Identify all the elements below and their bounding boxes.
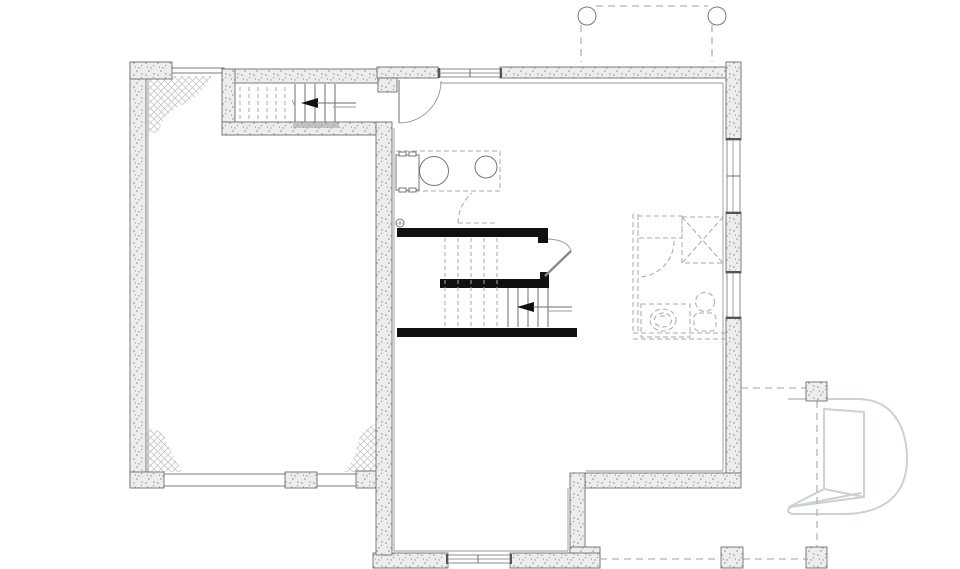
garage-pier-top-left: [130, 62, 172, 79]
porch-post-round-right: [708, 7, 726, 25]
bathroom-vanity-counter: [638, 216, 682, 238]
laundry-area: [396, 151, 500, 227]
hatch-patch-bottom-left: [147, 429, 183, 472]
stair-enclosure-top-wall: [222, 69, 390, 83]
bearing-wall-middle: [440, 279, 549, 288]
window-right-lower: [726, 271, 741, 319]
top-wall-left-segment: [377, 67, 438, 78]
watermark-logo: [788, 399, 907, 514]
interior-wall-garage-side: [376, 122, 392, 555]
window-right-upper: [726, 138, 741, 214]
upper-stair-dashed-treads: [240, 87, 285, 120]
future-bathroom: [633, 214, 726, 339]
windows: [438, 68, 741, 564]
bump-out-bottom-wall-right: [510, 553, 600, 568]
washer: [396, 152, 419, 192]
deck-post-bottom-right: [806, 547, 827, 568]
window-top: [438, 68, 502, 78]
front-porch-outline: [578, 6, 726, 62]
garage-pier-bottom-centre: [285, 472, 317, 488]
central-stair: [397, 228, 577, 337]
floor-plan-drawing: [0, 0, 960, 569]
bathroom-dashed-partitions: [633, 214, 726, 339]
deck-post-top-right: [806, 382, 827, 401]
right-wall-middle: [726, 212, 741, 273]
left-wall: [130, 62, 146, 487]
right-wall-upper: [726, 62, 741, 140]
hatch-patch-bottom-right: [344, 423, 377, 472]
entry-door-swing: [399, 80, 441, 123]
central-stair-direction-arrow: [517, 302, 572, 312]
right-wall-lower: [726, 317, 741, 473]
bearing-wall-top: [397, 228, 545, 237]
garage-top-frost-wall: [168, 68, 224, 73]
basement-floor-plan: [0, 0, 960, 569]
window-bottom: [446, 554, 512, 564]
bottom-right-wall: [585, 473, 741, 488]
floor-drain: [396, 219, 404, 227]
bathroom-door-swing: [638, 241, 674, 277]
bearing-wall-bottom: [397, 328, 577, 337]
laundry-door-swing: [458, 193, 497, 223]
garage-bottom-frost-wall: [130, 474, 383, 486]
upper-left-stair: [240, 84, 356, 128]
upper-stair-direction-arrow: [292, 98, 356, 108]
bearing-wall-top-jamb: [538, 228, 548, 243]
foundation-walls: [130, 62, 741, 568]
porch-post-round-left: [578, 7, 596, 25]
top-wall-right-segment: [500, 67, 741, 78]
laundry-tub: [420, 157, 449, 186]
deck-post-bottom-middle: [721, 547, 743, 568]
vanity-sink: [641, 304, 690, 337]
stair-door-swing: [545, 239, 571, 276]
garage-pier-bottom-left: [130, 472, 164, 488]
door-jamb-block: [378, 78, 397, 92]
shower: [682, 217, 723, 263]
toilet: [694, 293, 716, 332]
utility-sink: [475, 156, 497, 178]
hatch-patch-top-left: [148, 76, 212, 134]
